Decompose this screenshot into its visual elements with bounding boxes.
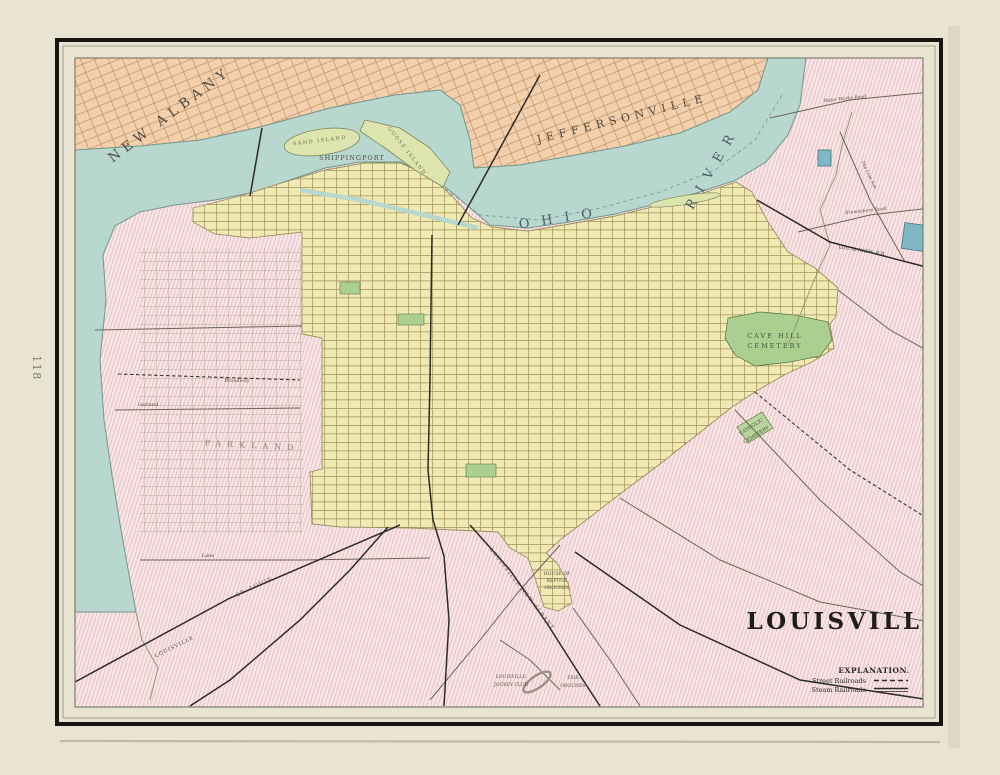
- label-broadway: Broadway: [224, 378, 250, 384]
- atlas-page: 118: [0, 0, 1000, 775]
- label-jockey-1: LOUISVILLE: [496, 674, 526, 680]
- legend-street-railroads-label: Street Railroads: [812, 677, 866, 685]
- page-bottom-shadow: [60, 741, 940, 742]
- label-fair-2: GROUNDS: [560, 683, 586, 689]
- legend-heading: EXPLANATION.: [838, 666, 909, 675]
- page-number: 118: [30, 355, 43, 381]
- legend-steam-railroads-label: Steam Railroads: [812, 686, 867, 694]
- label-garland: Garland: [138, 402, 159, 408]
- map-plate: NEW ALBANY JEFFERSONVILLE OHIO RIVER SAN…: [75, 58, 944, 707]
- city-park-1: [340, 282, 360, 294]
- reservoir-small: [818, 150, 831, 166]
- label-cave-hill-1: CAVE HILL: [747, 332, 803, 340]
- map-title: LOUISVILLE: [746, 608, 943, 635]
- city-park-2: [398, 314, 424, 325]
- label-cave-hill-2: CEMETERY: [747, 342, 802, 350]
- label-lane: Lane: [202, 553, 215, 559]
- city-park-3: [466, 464, 496, 477]
- label-shippingport: SHIPPINGPORT: [319, 154, 385, 162]
- label-refuge-2: REFUGE: [547, 578, 568, 584]
- label-jockey-2: JOCKEY CLUB: [493, 682, 529, 688]
- page-edge-shading: [948, 26, 960, 748]
- label-refuge-1: HOUSE OF: [544, 571, 571, 577]
- label-fair-1: FAIR: [567, 675, 579, 681]
- west-end-street-grid: [140, 248, 303, 534]
- label-refuge-3: GROUNDS: [544, 585, 570, 591]
